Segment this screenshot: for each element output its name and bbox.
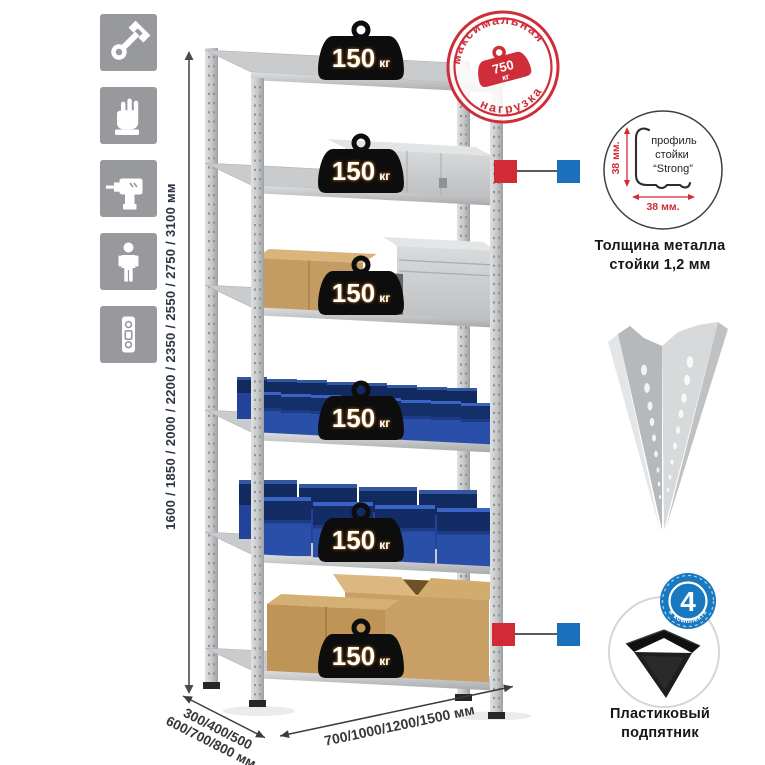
- width-label: 700/1000/1200/1500 мм: [323, 701, 476, 748]
- shelf-2: 150кг: [205, 136, 503, 206]
- angle-post-image: [600, 292, 745, 537]
- svg-text:профиль: профиль: [651, 135, 697, 147]
- wrench-icon: [100, 14, 157, 71]
- post-profile-connector: [517, 170, 557, 172]
- post-profile-marker-blue: [557, 160, 580, 183]
- profile-dim-vertical: 38 мм.: [610, 141, 622, 174]
- width-dimension: 700/1000/1200/1500 мм: [266, 670, 532, 755]
- quantity-badge: 4 в комплекте: [658, 571, 718, 631]
- shelf-3: 150кг: [205, 237, 503, 328]
- foot-marker-red: [492, 623, 515, 646]
- shelf-5: 150кг: [205, 480, 503, 575]
- drill-icon: [100, 160, 157, 217]
- shelving-infographic: 1600 / 1850 / 2000 / 2200 / 2350 / 2550 …: [0, 0, 765, 765]
- shelf-4: 150кг: [205, 377, 503, 453]
- foot-connector: [515, 633, 557, 635]
- foot-marker-blue: [557, 623, 580, 646]
- max-load-stamp: максимальная нагрузка 750 кг: [444, 8, 562, 126]
- profile-dim-horizontal: 38 мм.: [646, 201, 679, 213]
- height-dimension-label: 1600 / 1850 / 2000 / 2200 / 2350 / 2550 …: [163, 183, 178, 530]
- post-profile-marker-red: [494, 160, 517, 183]
- svg-text:“Strong”: “Strong”: [653, 163, 693, 175]
- foot-caption: Пластиковый подпятник: [580, 705, 740, 743]
- gloves-icon: [100, 87, 157, 144]
- profile-caption: Толщина металла стойки 1,2 мм: [575, 237, 745, 275]
- svg-text:стойки: стойки: [655, 149, 689, 161]
- weight-150-badge: 150кг: [318, 23, 404, 80]
- post-profile-detail: 38 мм. 38 мм. профиль стойки “Strong”: [600, 106, 730, 238]
- level-icon: [100, 306, 157, 363]
- person-icon: [100, 233, 157, 290]
- svg-text:4: 4: [680, 586, 696, 617]
